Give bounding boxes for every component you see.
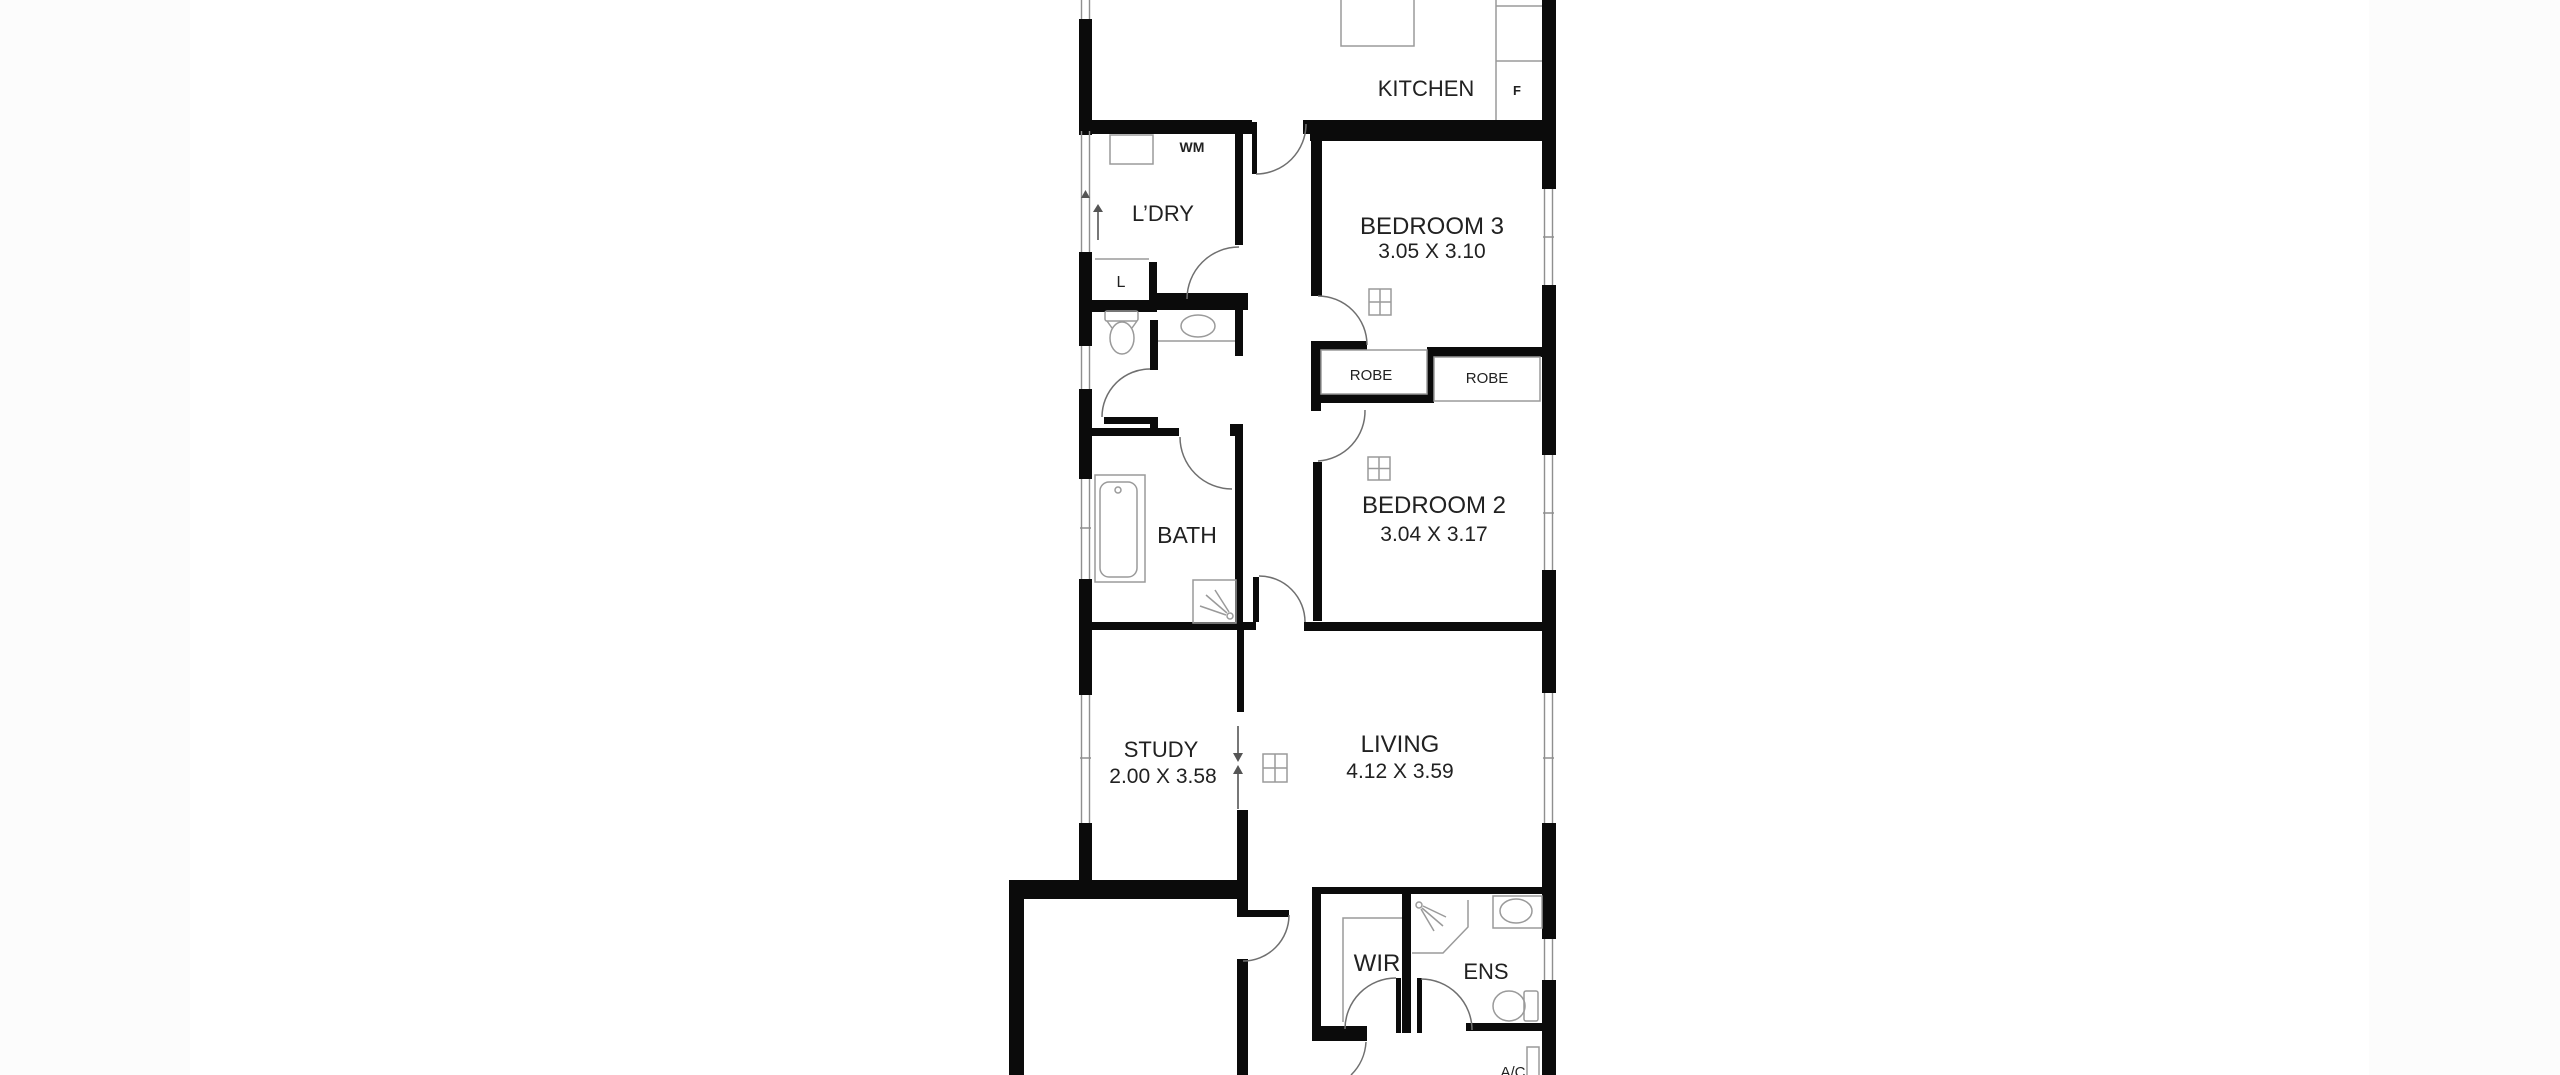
svg-text:ENS: ENS <box>1463 959 1508 984</box>
svg-text:L: L <box>1117 274 1126 291</box>
svg-text:F: F <box>1513 83 1521 98</box>
svg-text:BATH: BATH <box>1157 522 1217 548</box>
svg-text:ROBE: ROBE <box>1466 370 1509 387</box>
svg-text:KITCHEN: KITCHEN <box>1378 76 1475 101</box>
svg-text:2.00 X 3.58: 2.00 X 3.58 <box>1109 765 1216 788</box>
svg-text:BEDROOM 2: BEDROOM 2 <box>1362 492 1506 519</box>
svg-text:4.12 X 3.59: 4.12 X 3.59 <box>1346 760 1453 783</box>
svg-text:ROBE: ROBE <box>1350 367 1393 384</box>
svg-text:STUDY: STUDY <box>1124 737 1199 762</box>
svg-text:3.04 X 3.17: 3.04 X 3.17 <box>1380 523 1487 546</box>
svg-text:BEDROOM 3: BEDROOM 3 <box>1360 213 1504 240</box>
svg-text:3.05 X 3.10: 3.05 X 3.10 <box>1378 240 1485 263</box>
svg-text:WM: WM <box>1180 139 1205 155</box>
svg-text:L’DRY: L’DRY <box>1132 201 1194 226</box>
svg-text:LIVING: LIVING <box>1361 731 1440 758</box>
svg-text:A/C: A/C <box>1500 1064 1525 1075</box>
svg-text:WIR: WIR <box>1354 950 1401 977</box>
